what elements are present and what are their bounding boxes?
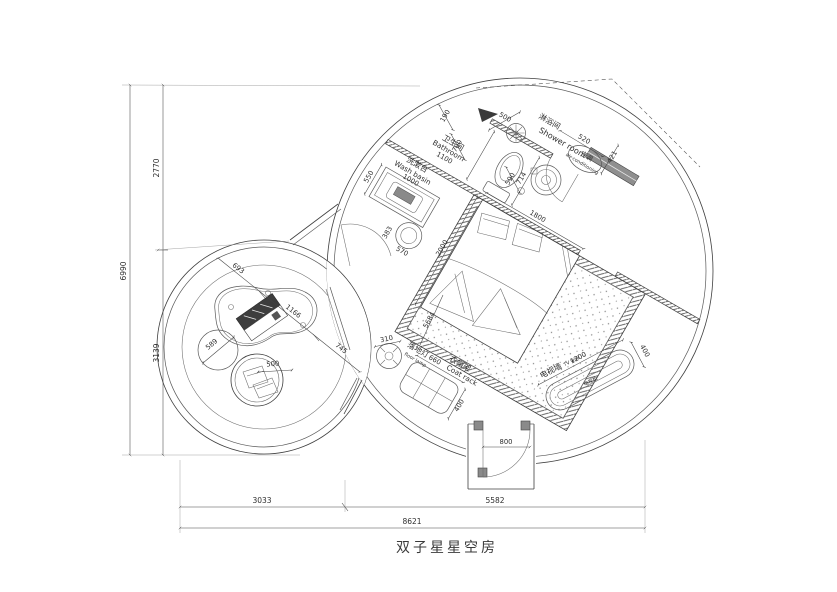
passage-mask xyxy=(327,261,371,385)
bottom-dimensions: 3033 5582 8621 xyxy=(180,440,645,533)
rotated-room-block: 714 550 383 570 洗漱台 Wash basin 1000 卫生间 xyxy=(305,78,735,461)
dim-421: 421 xyxy=(606,149,620,164)
dim-550: 550 xyxy=(362,169,375,184)
floor-plan-canvas: 714 550 383 570 洗漱台 Wash basin 1000 卫生间 xyxy=(0,0,837,592)
dim-570: 570 xyxy=(394,245,409,258)
dim-500: 500 xyxy=(497,111,512,124)
door-post xyxy=(521,421,530,430)
floor-plan-page: 714 550 383 570 洗漱台 Wash basin 1000 卫生间 xyxy=(0,0,837,592)
dim-rack-400: 400 xyxy=(453,398,466,413)
dim-nest-500: 500 xyxy=(266,359,280,368)
cushion xyxy=(243,366,268,388)
pouf-dim: 589 xyxy=(203,337,234,363)
dim-693: 693 xyxy=(231,261,246,275)
dim-800: 800 xyxy=(500,438,513,446)
dim-520: 520 xyxy=(576,133,591,147)
entrance-vestibule: 800 xyxy=(466,421,536,491)
dim-5582: 5582 xyxy=(485,496,504,505)
shower-head-icon xyxy=(507,124,526,143)
door-post xyxy=(478,468,487,477)
washing-machine-icon xyxy=(531,165,561,195)
door-post xyxy=(474,421,483,430)
dim-383: 383 xyxy=(381,225,394,240)
left-dimensions: 6990 2770 3139 xyxy=(119,85,420,455)
lamp-dim: 310 xyxy=(373,332,400,346)
dim-1166: 1166 xyxy=(284,303,303,320)
section-arrow-icon xyxy=(478,108,498,122)
dim-589: 589 xyxy=(204,337,219,351)
dim-tv-400: 400 xyxy=(638,343,651,358)
sink xyxy=(393,187,415,205)
dim-6990: 6990 xyxy=(119,261,128,280)
nest-dim: 500 xyxy=(258,359,292,372)
pouf xyxy=(198,330,238,370)
dim-8621: 8621 xyxy=(402,517,421,526)
dim-310: 310 xyxy=(379,334,393,345)
drawing-title: 双子星星空房 xyxy=(396,540,498,556)
floor-lamp xyxy=(377,344,402,369)
dim-2770: 2770 xyxy=(152,158,161,177)
cushion xyxy=(253,378,278,398)
dim-3033: 3033 xyxy=(252,496,271,505)
kidney-table xyxy=(215,286,317,346)
dim-3139: 3139 xyxy=(152,343,161,362)
dim-590: 590 xyxy=(504,171,517,186)
